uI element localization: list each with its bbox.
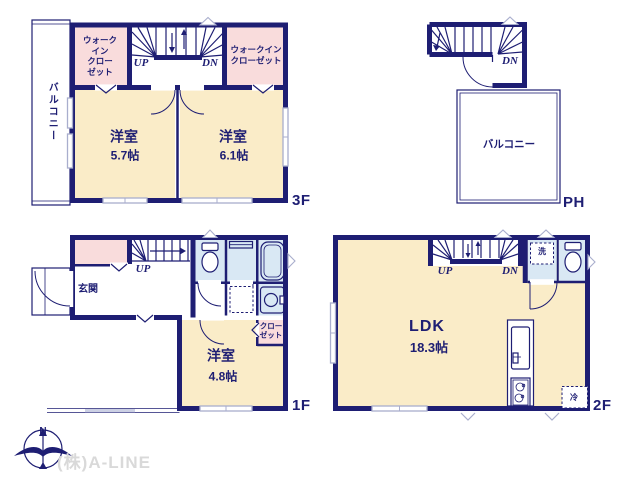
- compass-n-label: N: [39, 426, 46, 439]
- room2-name-3f: 洋室: [219, 128, 247, 146]
- vent-triangle: [200, 18, 216, 26]
- toilet-icon: [202, 243, 218, 272]
- up-label-1f: UP: [136, 263, 151, 277]
- washroom-1f: [227, 240, 256, 282]
- closet-entrance: [75, 240, 127, 265]
- entrance-porch: [32, 268, 70, 315]
- floor-label-ph: PH: [563, 194, 585, 213]
- ldk-size-label: 18.3帖: [410, 340, 448, 356]
- entrance-door-arc: [35, 271, 70, 306]
- washer-dashed-box: [230, 287, 253, 313]
- vent-triangle: [203, 230, 217, 238]
- vent-triangle: [495, 230, 511, 238]
- room-size-1f: 4.8帖: [209, 370, 238, 385]
- room-name-1f: 洋室: [207, 347, 235, 365]
- dn-label-ph: DN: [502, 55, 518, 69]
- floor-label-2f: 2F: [593, 397, 612, 416]
- company-watermark: (株)A-LINE: [57, 452, 151, 473]
- bathroom-1f: [259, 240, 286, 282]
- vent-triangle: [588, 255, 595, 269]
- vent-triangle: [288, 254, 295, 268]
- door-arc: [463, 57, 493, 87]
- vent-triangle: [538, 230, 554, 238]
- floor-ph-plan: [430, 17, 561, 203]
- vent-mark: [545, 413, 559, 420]
- balcony-3f-label: バルコニー: [45, 82, 58, 142]
- toilet-icon: [565, 243, 581, 273]
- floorplan: バルコニー ウォーク イン クロー ゼット ウォークイン クローゼット UP D…: [0, 0, 640, 480]
- laundry-label: 洗: [538, 247, 546, 257]
- wic-right-label: ウォークイン クローゼット: [230, 44, 281, 65]
- floor-1f-plan: [32, 230, 295, 413]
- vent-mark: [461, 413, 475, 420]
- kitchen-counter: [508, 320, 534, 407]
- ldk-name-label: LDK: [409, 317, 445, 337]
- floor-label-1f: 1F: [292, 397, 311, 416]
- up-label-3f: UP: [134, 57, 149, 71]
- room1-size-3f: 5.7帖: [111, 149, 140, 164]
- up-label-2f: UP: [438, 265, 453, 279]
- room2-size-3f: 6.1帖: [220, 149, 249, 164]
- wic-left-label: ウォーク イン クロー ゼット: [83, 35, 117, 78]
- floor-label-3f: 3F: [292, 192, 311, 211]
- fridge-label: 冷: [570, 393, 578, 403]
- closet-label-1f: クロー ゼット: [260, 322, 283, 341]
- dn-label-2f: DN: [502, 265, 518, 279]
- balcony-ph-label: バルコニー: [483, 138, 535, 151]
- dn-label-3f: DN: [202, 57, 218, 71]
- room1-name-3f: 洋室: [110, 128, 138, 146]
- window: [200, 406, 252, 411]
- entrance-label: 玄関: [78, 284, 98, 297]
- site-boundary-line: [47, 409, 180, 413]
- vent-triangle: [502, 17, 518, 25]
- floor-2f-plan: [331, 230, 596, 420]
